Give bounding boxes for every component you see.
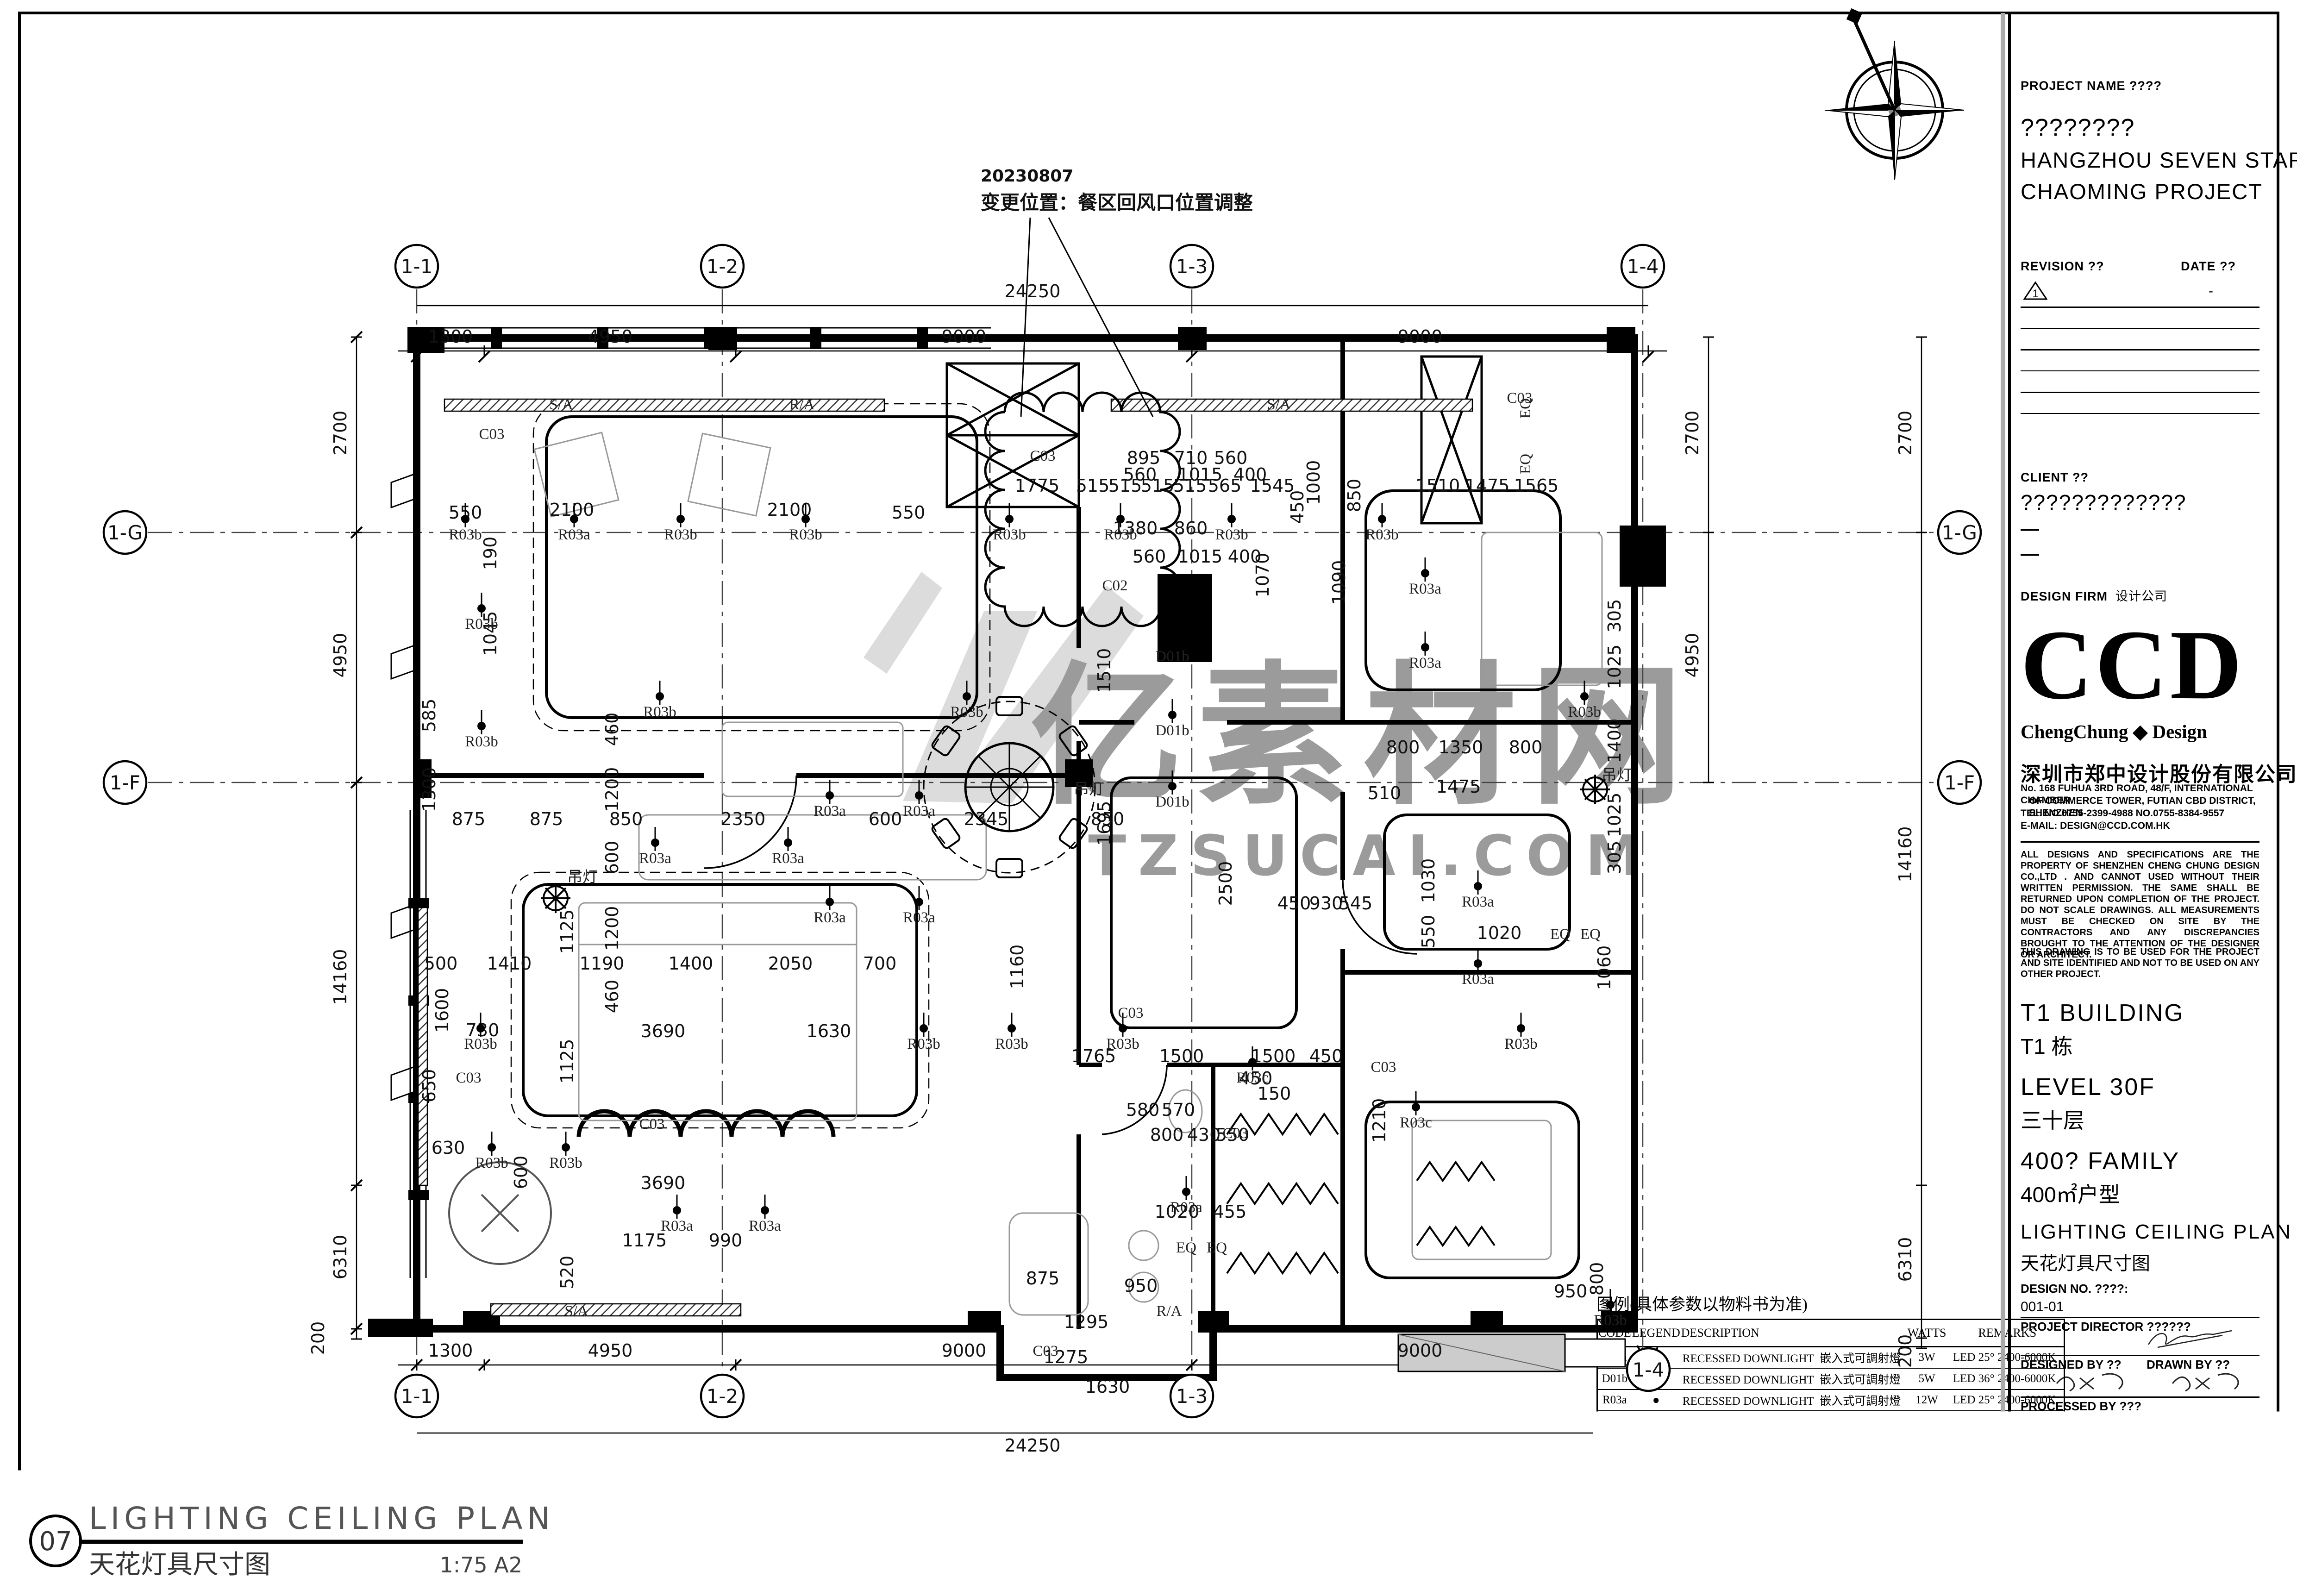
dim-label: 1200 xyxy=(602,906,622,951)
dim-label: 1295 xyxy=(1064,1312,1109,1332)
dim-label: 630 xyxy=(432,1138,465,1158)
grid-bubble xyxy=(1621,245,1664,288)
downlight-symbol xyxy=(915,886,923,910)
dim-label: 2350 xyxy=(721,809,766,829)
client-dash1: — xyxy=(2021,519,2259,539)
project-name-label: PROJECT NAME ???? xyxy=(2021,79,2259,93)
downlight-symbol xyxy=(826,780,834,804)
light-code-label: R03a xyxy=(749,1218,781,1234)
legend-remarks: LED 120° 2400-6000K xyxy=(1951,1496,2064,1517)
legend-code: R03c xyxy=(1597,1432,1632,1453)
dim-label: 550 xyxy=(892,502,926,523)
downlight-symbol xyxy=(1378,503,1386,527)
downlight-symbol xyxy=(1168,770,1177,795)
light-code-label: C03 xyxy=(1371,1059,1396,1076)
legend-watts: 14.4W/M xyxy=(1903,1560,1951,1582)
dim-label: 1600 xyxy=(432,988,452,1033)
dim-label: 1125 xyxy=(557,909,577,954)
grid-bubble xyxy=(701,245,744,288)
date-label: DATE ?? xyxy=(2163,1517,2259,1531)
downlight-symbol xyxy=(1474,948,1482,972)
downlight-symbol xyxy=(477,710,486,734)
footer-scale: 1:75 A2 xyxy=(439,1552,522,1577)
light-code-label: R03b xyxy=(465,733,498,750)
design-no-value: 001-01 xyxy=(2021,1299,2259,1315)
grid-bubble xyxy=(104,761,146,804)
light-code-label: R/A xyxy=(1156,1303,1182,1320)
signature-processed xyxy=(2070,1404,2172,1436)
dim-label: 570 xyxy=(1162,1100,1195,1120)
svg-text:TZSUCAI.COM: TZSUCAI.COM xyxy=(1088,824,1652,889)
grid-bubble xyxy=(395,245,438,288)
dim-label: 800 xyxy=(1386,737,1420,757)
dim-label: 1125 xyxy=(557,1039,577,1084)
light-code-label: D01b xyxy=(1155,794,1189,810)
light-code-label: R03b xyxy=(907,1036,940,1052)
downlight-symbol xyxy=(1119,1013,1127,1037)
dim-label: 2700 xyxy=(1895,411,1915,456)
light-code-label: R/A xyxy=(789,396,814,413)
light-code-label: R03a xyxy=(1462,971,1494,988)
legend-symbol-downlight-icon: ● xyxy=(1632,1389,1681,1411)
dim-label: 515 xyxy=(1141,476,1175,496)
legend-remarks: LED 25° 2400-6000K xyxy=(1951,1347,2064,1369)
disclaimer-2: THIS DRAWING IS TO BE USED FOR THE PROJE… xyxy=(2021,946,2259,980)
light-code-label: R03b xyxy=(1568,704,1601,720)
legend-code: C01 xyxy=(1597,1496,1632,1517)
dim-label: 3690 xyxy=(641,1021,686,1041)
dim-label: 730 xyxy=(466,1020,500,1040)
dim-label: 1015 xyxy=(1178,546,1223,567)
dim-label: 1045 xyxy=(480,611,501,656)
legend-symbol-downlight-icon: ● xyxy=(1632,1432,1681,1453)
dim-label: 560 xyxy=(1214,448,1248,468)
legend-col-watts: WATTS xyxy=(1903,1320,1951,1347)
dim-label: 400 xyxy=(1233,464,1267,485)
pendant-symbols xyxy=(541,775,1610,913)
revision-date-value: - xyxy=(2209,283,2259,299)
light-code-label: C03 xyxy=(1222,1125,1248,1142)
dim-label: 1175 xyxy=(622,1230,667,1251)
light-code-label: R03b xyxy=(1104,526,1137,543)
light-code-label: R03b xyxy=(464,1036,497,1052)
footer-number: 07 xyxy=(39,1527,72,1557)
legend-remarks: LED 25° 2400-6000K xyxy=(1951,1389,2064,1411)
light-code-label: R03b xyxy=(475,1155,508,1171)
watermark: 亿素材网 TZSUCAI.COM xyxy=(864,572,1697,889)
legend-watts: 5W xyxy=(1903,1368,1951,1389)
legend-remarks: LED 50° 2400-6000K xyxy=(1951,1411,2064,1432)
downlight-symbol xyxy=(1227,503,1236,527)
downlight-symbol xyxy=(676,503,685,527)
dim-label: 4950 xyxy=(588,326,633,347)
light-code-label: R03b xyxy=(664,526,697,543)
light-code-label: 吊灯 xyxy=(567,869,598,886)
dim-label: 400 xyxy=(1228,546,1262,567)
dim-label: 515 xyxy=(1173,476,1207,496)
light-code-label: EQ xyxy=(1176,1239,1196,1256)
dim-label: 1510 xyxy=(1094,648,1114,693)
legend-remarks: LED 120° 2400-6000K xyxy=(1951,1539,2064,1560)
legend-watts: 4W xyxy=(1903,1475,1951,1496)
date-value: 27 JULY,2023 xyxy=(2163,1534,2259,1550)
legend-remarks: LED 36° 2400-6000K xyxy=(1951,1453,2064,1475)
downlight-symbol xyxy=(1474,870,1482,895)
legend-symbol-downlight-icon: ● xyxy=(1632,1368,1681,1389)
grid-bubble-label: 1-4 xyxy=(1627,255,1659,278)
dim-label: 2100 xyxy=(767,500,812,520)
dim-label: 305 xyxy=(1604,599,1625,633)
light-code-label: EQ xyxy=(1550,926,1571,943)
legend-row: R04b●RECESSED DOWNLIGHT 嵌入式防霧射燈12W*2LED … xyxy=(1597,1453,2065,1475)
light-code-label: R03b xyxy=(1215,526,1248,543)
building-en: T1 BUILDING xyxy=(2021,999,2259,1027)
drawing-title-footer: 07 LIGHTING CEILING PLAN 天花灯具尺寸图 1:75 A2 xyxy=(31,1501,555,1580)
downlight-symbol xyxy=(477,593,486,617)
light-code-label: C03 xyxy=(639,1116,664,1133)
dim-label: 800 xyxy=(1150,1125,1184,1145)
downlight-symbol xyxy=(488,1132,496,1156)
dim-label: 580 xyxy=(1126,1100,1160,1120)
legend-code: C03 xyxy=(1597,1560,1632,1582)
legend-watts: 4.8W/M xyxy=(1903,1496,1951,1517)
light-code-label: C03 xyxy=(456,1070,481,1086)
light-code-label: EQ xyxy=(1517,454,1534,474)
dim-label: 1030 xyxy=(1418,858,1439,903)
legend-code: R04b xyxy=(1597,1453,1632,1475)
dim-label: 600 xyxy=(602,841,622,875)
dim-label: 450 xyxy=(1309,1046,1343,1066)
legend-symbol-downlight-icon: ● xyxy=(1632,1453,1681,1475)
firm-email: E-MAIL: DESIGN@CCD.COM.HK xyxy=(2021,820,2259,832)
light-code-label: 吊灯 xyxy=(1074,781,1104,798)
north-compass-icon xyxy=(1825,8,1964,180)
level-en: LEVEL 30F xyxy=(2021,1073,2259,1101)
plan-title-en: LIGHTING CEILING PLAN xyxy=(2021,1220,2259,1244)
client-dash2: — xyxy=(2021,544,2259,564)
grid-bubble xyxy=(395,1375,438,1417)
legend-col-description: DESCRIPTION xyxy=(1681,1320,1903,1347)
downlight-symbol xyxy=(761,1195,769,1219)
light-code-label: R03a xyxy=(1170,1199,1202,1216)
legend-symbol-downlight-icon: ● xyxy=(1632,1347,1681,1369)
light-code-label: R03a xyxy=(903,909,935,926)
dim-label: 875 xyxy=(1026,1268,1060,1289)
legend-watts: 12W xyxy=(1903,1432,1951,1453)
legend-code: R03b xyxy=(1597,1411,1632,1432)
light-code-label: R03b xyxy=(1504,1036,1538,1052)
building-walls xyxy=(368,327,1666,1377)
dim-label: 1020 xyxy=(1155,1202,1200,1222)
legend-desc: RECESSED DOWNLIGHT 嵌入式可調射燈 xyxy=(1681,1389,1903,1411)
legend-desc: CONCEALED LIGHT 层板LED 燈帶 xyxy=(1681,1539,1903,1560)
downlight-symbol xyxy=(963,681,971,705)
legend-title: 图例(具体参数以物料书为准) xyxy=(1596,1291,2003,1315)
project-name-cn: ???????? xyxy=(2021,114,2259,142)
dim-label: 1380 xyxy=(1113,518,1158,538)
legend-symbol-strip-icon xyxy=(1632,1496,1681,1517)
grid-bubble-label: 1-G xyxy=(107,521,143,544)
legend-desc: RECESSED DOWNLIGHT 插地射燈 xyxy=(1681,1475,1903,1496)
dim-label: 1765 xyxy=(1071,1046,1116,1066)
dim-label: 1210 xyxy=(1369,1098,1389,1143)
firm-tel: TEL. NO.0755-2399-4988 NO.0755-8384-9557 xyxy=(2021,807,2259,820)
grid-bubble-label: 1-1 xyxy=(401,1385,433,1408)
dim-label: 2100 xyxy=(550,500,595,520)
dim-label: 6310 xyxy=(1895,1237,1915,1282)
dim-label: 550 xyxy=(1418,915,1439,949)
dim-label: 4950 xyxy=(1682,633,1702,678)
dim-label: 560 xyxy=(1133,546,1166,567)
grid-bubble xyxy=(1938,511,1981,554)
design-no-label: DESIGN NO. ????: xyxy=(2021,1282,2259,1296)
ceiling-features xyxy=(418,399,1579,1316)
light-code-label: R03a xyxy=(1409,581,1441,597)
drawing-sheet: PROJECT NAME ???? ???????? HANGZHOU SEVE… xyxy=(0,0,2297,1596)
downlight-symbol xyxy=(1421,557,1429,582)
dim-label: 2050 xyxy=(768,953,813,974)
grid-bubble xyxy=(104,511,146,554)
dim-label: 14160 xyxy=(330,949,350,1005)
dim-label: 1300 xyxy=(419,767,439,812)
dim-label: 850 xyxy=(609,809,643,829)
light-code-label: R03b xyxy=(950,704,983,720)
light-code-label: R03b xyxy=(1106,1036,1139,1052)
light-code-label: R03a xyxy=(661,1218,693,1234)
downlight-symbol xyxy=(801,503,810,527)
light-code-label: D01b xyxy=(1155,648,1189,665)
legend-row: C01CONCEALED LIGHT 暗藏LED 燈帶4.8W/MLED 120… xyxy=(1597,1496,2065,1517)
dim-label: 9000 xyxy=(942,1340,987,1361)
svg-text:亿素材网: 亿素材网 xyxy=(1030,648,1697,826)
light-code-label: R03c xyxy=(1236,1070,1269,1086)
legend-watts: 12W xyxy=(1903,1411,1951,1432)
legend-code: D01b xyxy=(1597,1368,1632,1389)
grid-lines xyxy=(148,289,1938,1373)
legend-row: R03a●RECESSED DOWNLIGHT 嵌入式可調射燈12WLED 25… xyxy=(1597,1389,2065,1411)
dim-label: 560 xyxy=(1123,464,1157,485)
downlight-symbol xyxy=(920,1013,928,1037)
dim-label: 1200 xyxy=(602,767,622,812)
footer-title-cn: 天花灯具尺寸图 xyxy=(89,1550,270,1580)
dim-label: 1695 xyxy=(1094,801,1114,846)
dim-label: 545 xyxy=(1339,893,1373,914)
light-code-label: R03a xyxy=(639,850,671,867)
legend-remarks: LED 24° 3000K xyxy=(1951,1475,2064,1496)
downlight-symbol xyxy=(562,1132,570,1156)
chandelier-dining xyxy=(931,697,1089,877)
light-code-label: EQ xyxy=(1517,398,1534,419)
dim-label: 14160 xyxy=(1895,826,1915,882)
signature-drawn xyxy=(2167,1365,2250,1397)
dim-label: 860 xyxy=(1174,518,1208,538)
dim-label: 700 xyxy=(863,953,897,974)
downlight-symbol xyxy=(1168,699,1177,723)
downlight-symbol xyxy=(1248,1046,1257,1070)
dim-label: 1020 xyxy=(1477,923,1522,943)
dim-label: 1500 xyxy=(1159,1046,1204,1066)
dim-label: 24250 xyxy=(1005,281,1061,301)
dim-label: 510 xyxy=(1368,783,1402,803)
legend-row: R03c●RECESSED DOWNLIGHT 嵌入式防霧射燈12WLED 36… xyxy=(1597,1432,2065,1453)
legend: 图例(具体参数以物料书为准) CODELEGENDDESCRIPTIONWATT… xyxy=(1596,1291,2003,1582)
dim-label: 710 xyxy=(1174,448,1208,468)
legend-remarks: LED 36° 2400-6000K xyxy=(1951,1432,2064,1453)
building-cn: T1 栋 xyxy=(2021,1030,2259,1060)
dim-label: 950 xyxy=(1554,1281,1588,1302)
legend-remarks: LED 120° 2400-6000K xyxy=(1951,1517,2064,1539)
dim-label: 875 xyxy=(452,809,486,829)
dim-label: 2700 xyxy=(330,411,350,456)
phase-value: ??? xyxy=(2181,1495,2259,1510)
dim-label: 500 xyxy=(424,953,458,974)
legend-table: CODELEGENDDESCRIPTIONWATTSREMARKS R01a●R… xyxy=(1596,1319,2065,1582)
light-code-label: C03 xyxy=(1033,1343,1058,1359)
grid-bubble-label: 1-2 xyxy=(707,255,739,278)
project-name-en1: HANGZHOU SEVEN STAR xyxy=(2021,147,2259,173)
legend-col-legend: LEGEND xyxy=(1632,1320,1681,1347)
legend-symbol-strip-icon xyxy=(1632,1539,1681,1560)
light-code-label: R03b xyxy=(789,526,822,543)
dim-label: 550 xyxy=(1216,1125,1250,1145)
dim-label: 9000 xyxy=(1398,326,1443,347)
dim-label: 550 xyxy=(449,502,482,523)
downlight-symbol xyxy=(1182,1176,1190,1200)
dim-label: 1000 xyxy=(1303,460,1324,505)
legend-row: R03b●RECESSED DOWNLIGHT 嵌入式可調射燈12WLED 50… xyxy=(1597,1411,2065,1432)
downlight-symbol xyxy=(1412,1091,1420,1115)
downlight-symbol xyxy=(1005,503,1014,527)
disclaimer-1: ALL DESIGNS AND SPECIFICATIONS ARE THE P… xyxy=(2021,849,2259,960)
dim-label: 565 xyxy=(1208,476,1242,496)
legend-code: R03a xyxy=(1597,1389,1632,1411)
downlight-symbol xyxy=(476,1013,485,1037)
dim-label: 1775 xyxy=(1015,476,1060,496)
family-cn: 400㎡户型 xyxy=(2021,1178,2259,1208)
dim-label: 2700 xyxy=(1682,411,1702,456)
light-code-label: C03 xyxy=(479,426,504,443)
light-code-label: R03a xyxy=(772,850,804,867)
light-code-label: C03 xyxy=(1118,1005,1143,1021)
legend-code: R01a xyxy=(1597,1347,1632,1369)
legend-col-code: CODE xyxy=(1597,1320,1632,1347)
dim-label: 430 xyxy=(1187,1125,1221,1145)
ccd-logo-sub: ChengChung ◆ Design xyxy=(2021,720,2259,743)
downlight-symbol xyxy=(1421,632,1429,656)
grid-bubble-label: 1-3 xyxy=(1176,1385,1208,1408)
legend-code: C02a xyxy=(1597,1539,1632,1560)
legend-desc: CONCEALED LIGHT 暗藏LED 燈帶 xyxy=(1681,1560,1903,1582)
dim-label: 1500 xyxy=(1251,1046,1296,1066)
grid-bubble-label: 1-G xyxy=(1942,521,1977,544)
dim-label: 1545 xyxy=(1250,476,1295,496)
light-code-label: R03b xyxy=(995,1036,1028,1052)
downlight-symbol xyxy=(570,503,578,527)
revision-note: 20230807 变更位置：餐区回风口位置调整 xyxy=(981,167,1253,626)
downlight-symbol xyxy=(1168,625,1177,649)
light-code-label: EQ xyxy=(1580,926,1601,943)
dim-label: 2500 xyxy=(1215,861,1236,906)
legend-watts: 12W*2 xyxy=(1903,1453,1951,1475)
legend-desc: RECESSED DOWNLIGHT 嵌入式可調射燈 xyxy=(1681,1347,1903,1369)
downlight-symbol xyxy=(1008,1013,1016,1037)
level-cn: 三十层 xyxy=(2021,1104,2259,1134)
project-name-en2: CHAOMING PROJECT xyxy=(2021,179,2259,204)
dim-label: 800 xyxy=(1509,737,1543,757)
dim-label: 850 xyxy=(1091,809,1125,829)
dim-label: 875 xyxy=(530,809,563,829)
dim-label: 1630 xyxy=(1085,1377,1130,1397)
light-code-label: R03a xyxy=(1409,655,1441,671)
light-code-label: C03 xyxy=(1507,390,1532,407)
dim-label: 895 xyxy=(1127,448,1161,468)
dim-label: 1475 xyxy=(1465,476,1510,496)
dim-label: 2345 xyxy=(964,809,1009,829)
legend-remarks: LED 36° 2400-6000K xyxy=(1951,1368,2064,1389)
downlight-symbol xyxy=(1580,681,1589,705)
family-en: 400? FAMILY xyxy=(2021,1147,2259,1175)
legend-symbol-downlight-icon: ● xyxy=(1632,1475,1681,1496)
light-code-label: R03b xyxy=(549,1155,582,1171)
light-code-label: R03b xyxy=(643,704,676,720)
grid-bubble xyxy=(1170,1375,1213,1417)
ccd-logo: CCD xyxy=(2021,615,2259,714)
light-code-label: R03a xyxy=(903,803,935,820)
grid-bubble xyxy=(701,1375,744,1417)
light-code-label: R03b xyxy=(993,526,1026,543)
light-code-label: R03c xyxy=(1400,1114,1432,1131)
downlight-symbol xyxy=(826,886,834,910)
legend-watts: 7.2W/M xyxy=(1903,1517,1951,1539)
light-code-label: R03b xyxy=(1365,526,1399,543)
furniture xyxy=(449,432,1602,1315)
dim-label: 850 xyxy=(1344,479,1364,513)
light-code-label: C03 xyxy=(1030,448,1055,464)
dim-label: 990 xyxy=(709,1230,743,1251)
legend-row: C02aCONCEALED LIGHT 层板LED 燈帶7.2W/MLED 12… xyxy=(1597,1539,2065,1560)
dim-label: 1090 xyxy=(1329,560,1349,605)
legend-code: C02 xyxy=(1597,1517,1632,1539)
dim-label: 1025 xyxy=(1604,793,1625,838)
downlight-symbol xyxy=(651,827,659,851)
light-code-label: EQ xyxy=(1207,1239,1227,1256)
light-code-label: R03a xyxy=(558,526,590,543)
dim-label: 200 xyxy=(308,1321,328,1355)
dim-label: 1400 xyxy=(669,953,714,974)
legend-desc: RECESSED DOWNLIGHT 嵌入式可調射燈 xyxy=(1681,1411,1903,1432)
light-code-label: R03a xyxy=(814,803,846,820)
dim-label: 1190 xyxy=(580,953,625,974)
dim-label: 190 xyxy=(480,537,501,570)
legend-row: X03●RECESSED DOWNLIGHT 插地射燈4WLED 24° 300… xyxy=(1597,1475,2065,1496)
dim-label: 150 xyxy=(1258,1083,1291,1104)
legend-desc: CONCEALED LIGHT 暗藏LED 燈帶 xyxy=(1681,1517,1903,1539)
dim-label: 1565 xyxy=(1514,476,1559,496)
plan-title-cn: 天花灯具尺寸图 xyxy=(2021,1248,2259,1275)
dim-label: 930 xyxy=(1309,893,1343,914)
dim-label: 1410 xyxy=(487,953,532,974)
grid-bubble xyxy=(1170,245,1213,288)
dim-label: 600 xyxy=(869,809,902,829)
revision-date-label: DATE ?? xyxy=(2181,259,2259,274)
dim-label: 1350 xyxy=(1439,737,1483,757)
downlight-symbol xyxy=(1116,503,1125,527)
light-code-label: D01b xyxy=(1155,722,1189,739)
legend-code: X03 xyxy=(1597,1475,1632,1496)
legend-symbol-downlight-icon: ● xyxy=(1632,1411,1681,1432)
legend-row: C03CONCEALED LIGHT 暗藏LED 燈帶14.4W/MLED 12… xyxy=(1597,1560,2065,1582)
revision-note-text: 变更位置：餐区回风口位置调整 xyxy=(981,191,1253,214)
